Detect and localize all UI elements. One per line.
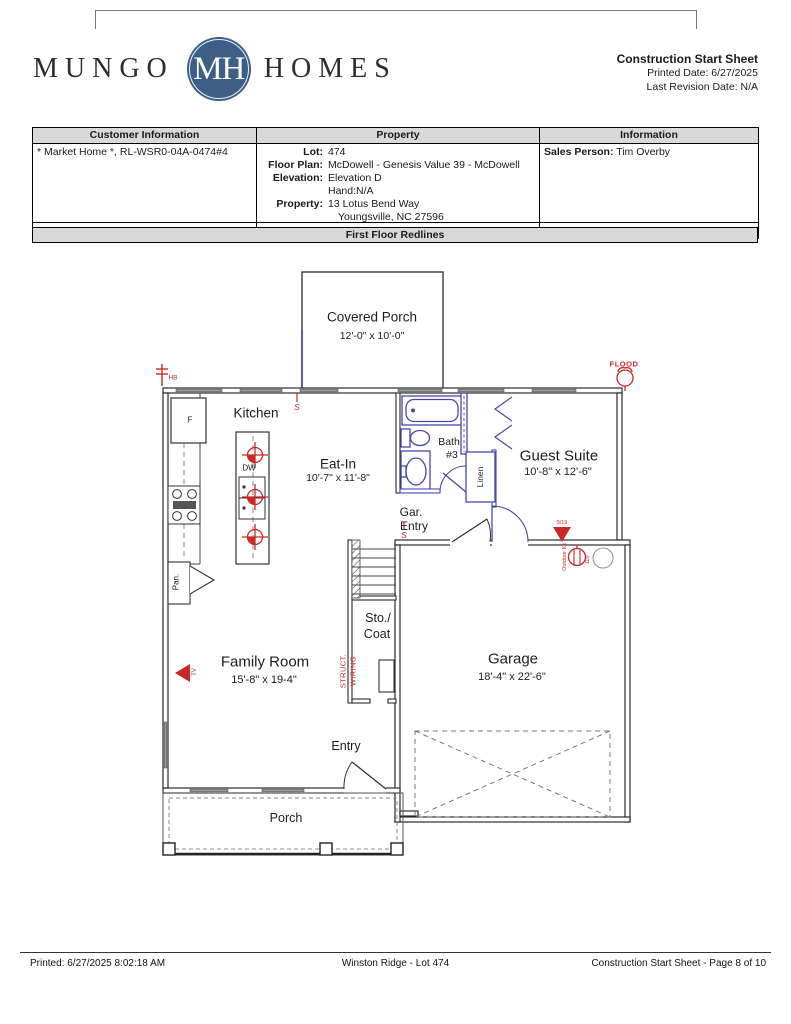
footer-page-number: Construction Start Sheet - Page 8 of 10: [591, 958, 766, 969]
redline-keynote-label: 9/19: [557, 520, 568, 526]
range-stove-icon: [168, 486, 200, 524]
vanity-sink-icon: [401, 451, 430, 492]
room-label-covered-porch: Covered Porch: [327, 310, 417, 325]
redline-flood-label: FLOOD: [610, 360, 639, 369]
dims-covered-porch: 12'-0" x 10'-0": [340, 330, 405, 342]
room-label-sto-coat-line1: Sto./: [365, 611, 391, 625]
redline-wiring-label: WIRING: [349, 656, 358, 686]
dims-guest-suite: 10'-8" x 12'-6": [524, 466, 592, 478]
stairs: [352, 540, 396, 598]
room-label-porch: Porch: [270, 811, 303, 825]
label-pantry: Pan.: [172, 574, 181, 590]
room-label-family-room: Family Room: [221, 654, 309, 671]
room-label-bath-line1: Bath: [438, 436, 460, 448]
label-linen: Linen: [475, 467, 485, 488]
redline-outdoor-label-1: Outdoor Kit: [562, 543, 568, 571]
redline-struct-label: STRUCT.: [339, 654, 348, 688]
dims-family-room: 15'-8" x 19-4": [231, 674, 297, 686]
redline-tv-label: TV: [192, 668, 198, 676]
closet-door: [379, 660, 394, 692]
room-label-guest-suite: Guest Suite: [520, 448, 598, 465]
redline-outdoor-label-2: 110: [585, 556, 591, 565]
room-label-eat-in: Eat-In: [320, 457, 356, 472]
garage-door-dashed: [415, 731, 610, 817]
dims-garage: 18'-4" x 22'-6": [478, 671, 546, 683]
bath-door-swing: [440, 466, 466, 492]
room-label-kitchen: Kitchen: [233, 406, 278, 421]
garage-entry-door-swing: [452, 519, 491, 542]
redline-hb-label: HB: [168, 375, 177, 382]
entry-door-swing: [344, 762, 386, 789]
label-fridge: F: [188, 416, 193, 425]
tv-marker-icon: [175, 664, 190, 682]
bifold-closet-door: [495, 397, 512, 449]
room-label-gar-entry-line1: Gar.: [400, 505, 423, 519]
label-dishwasher: DW: [242, 464, 255, 473]
redline-switch-label-2: S: [401, 530, 407, 540]
guest-suite-door-swing: [492, 506, 528, 542]
pantry-door-swing: [190, 566, 214, 594]
hose-bib-icon: [156, 364, 168, 386]
toilet-icon: [401, 429, 430, 447]
room-label-bath-line2: #3: [446, 449, 458, 461]
footer-divider-line: [20, 952, 771, 953]
ceiling-fixture-circle: [593, 548, 613, 568]
redline-switch-label-1: S: [294, 402, 300, 412]
room-label-sto-coat-line2: Coat: [364, 627, 390, 641]
outdoor-outlet-icon: [569, 545, 586, 566]
room-label-entry: Entry: [331, 739, 360, 753]
room-label-garage: Garage: [488, 651, 538, 668]
floor-plan-drawing: [0, 0, 791, 1024]
document-page: MUNGO MH HOMES Construction Start Sheet …: [0, 0, 791, 1024]
dims-eat-in: 10'-7" x 11'-8": [306, 472, 370, 484]
bathtub-icon: [402, 396, 462, 425]
